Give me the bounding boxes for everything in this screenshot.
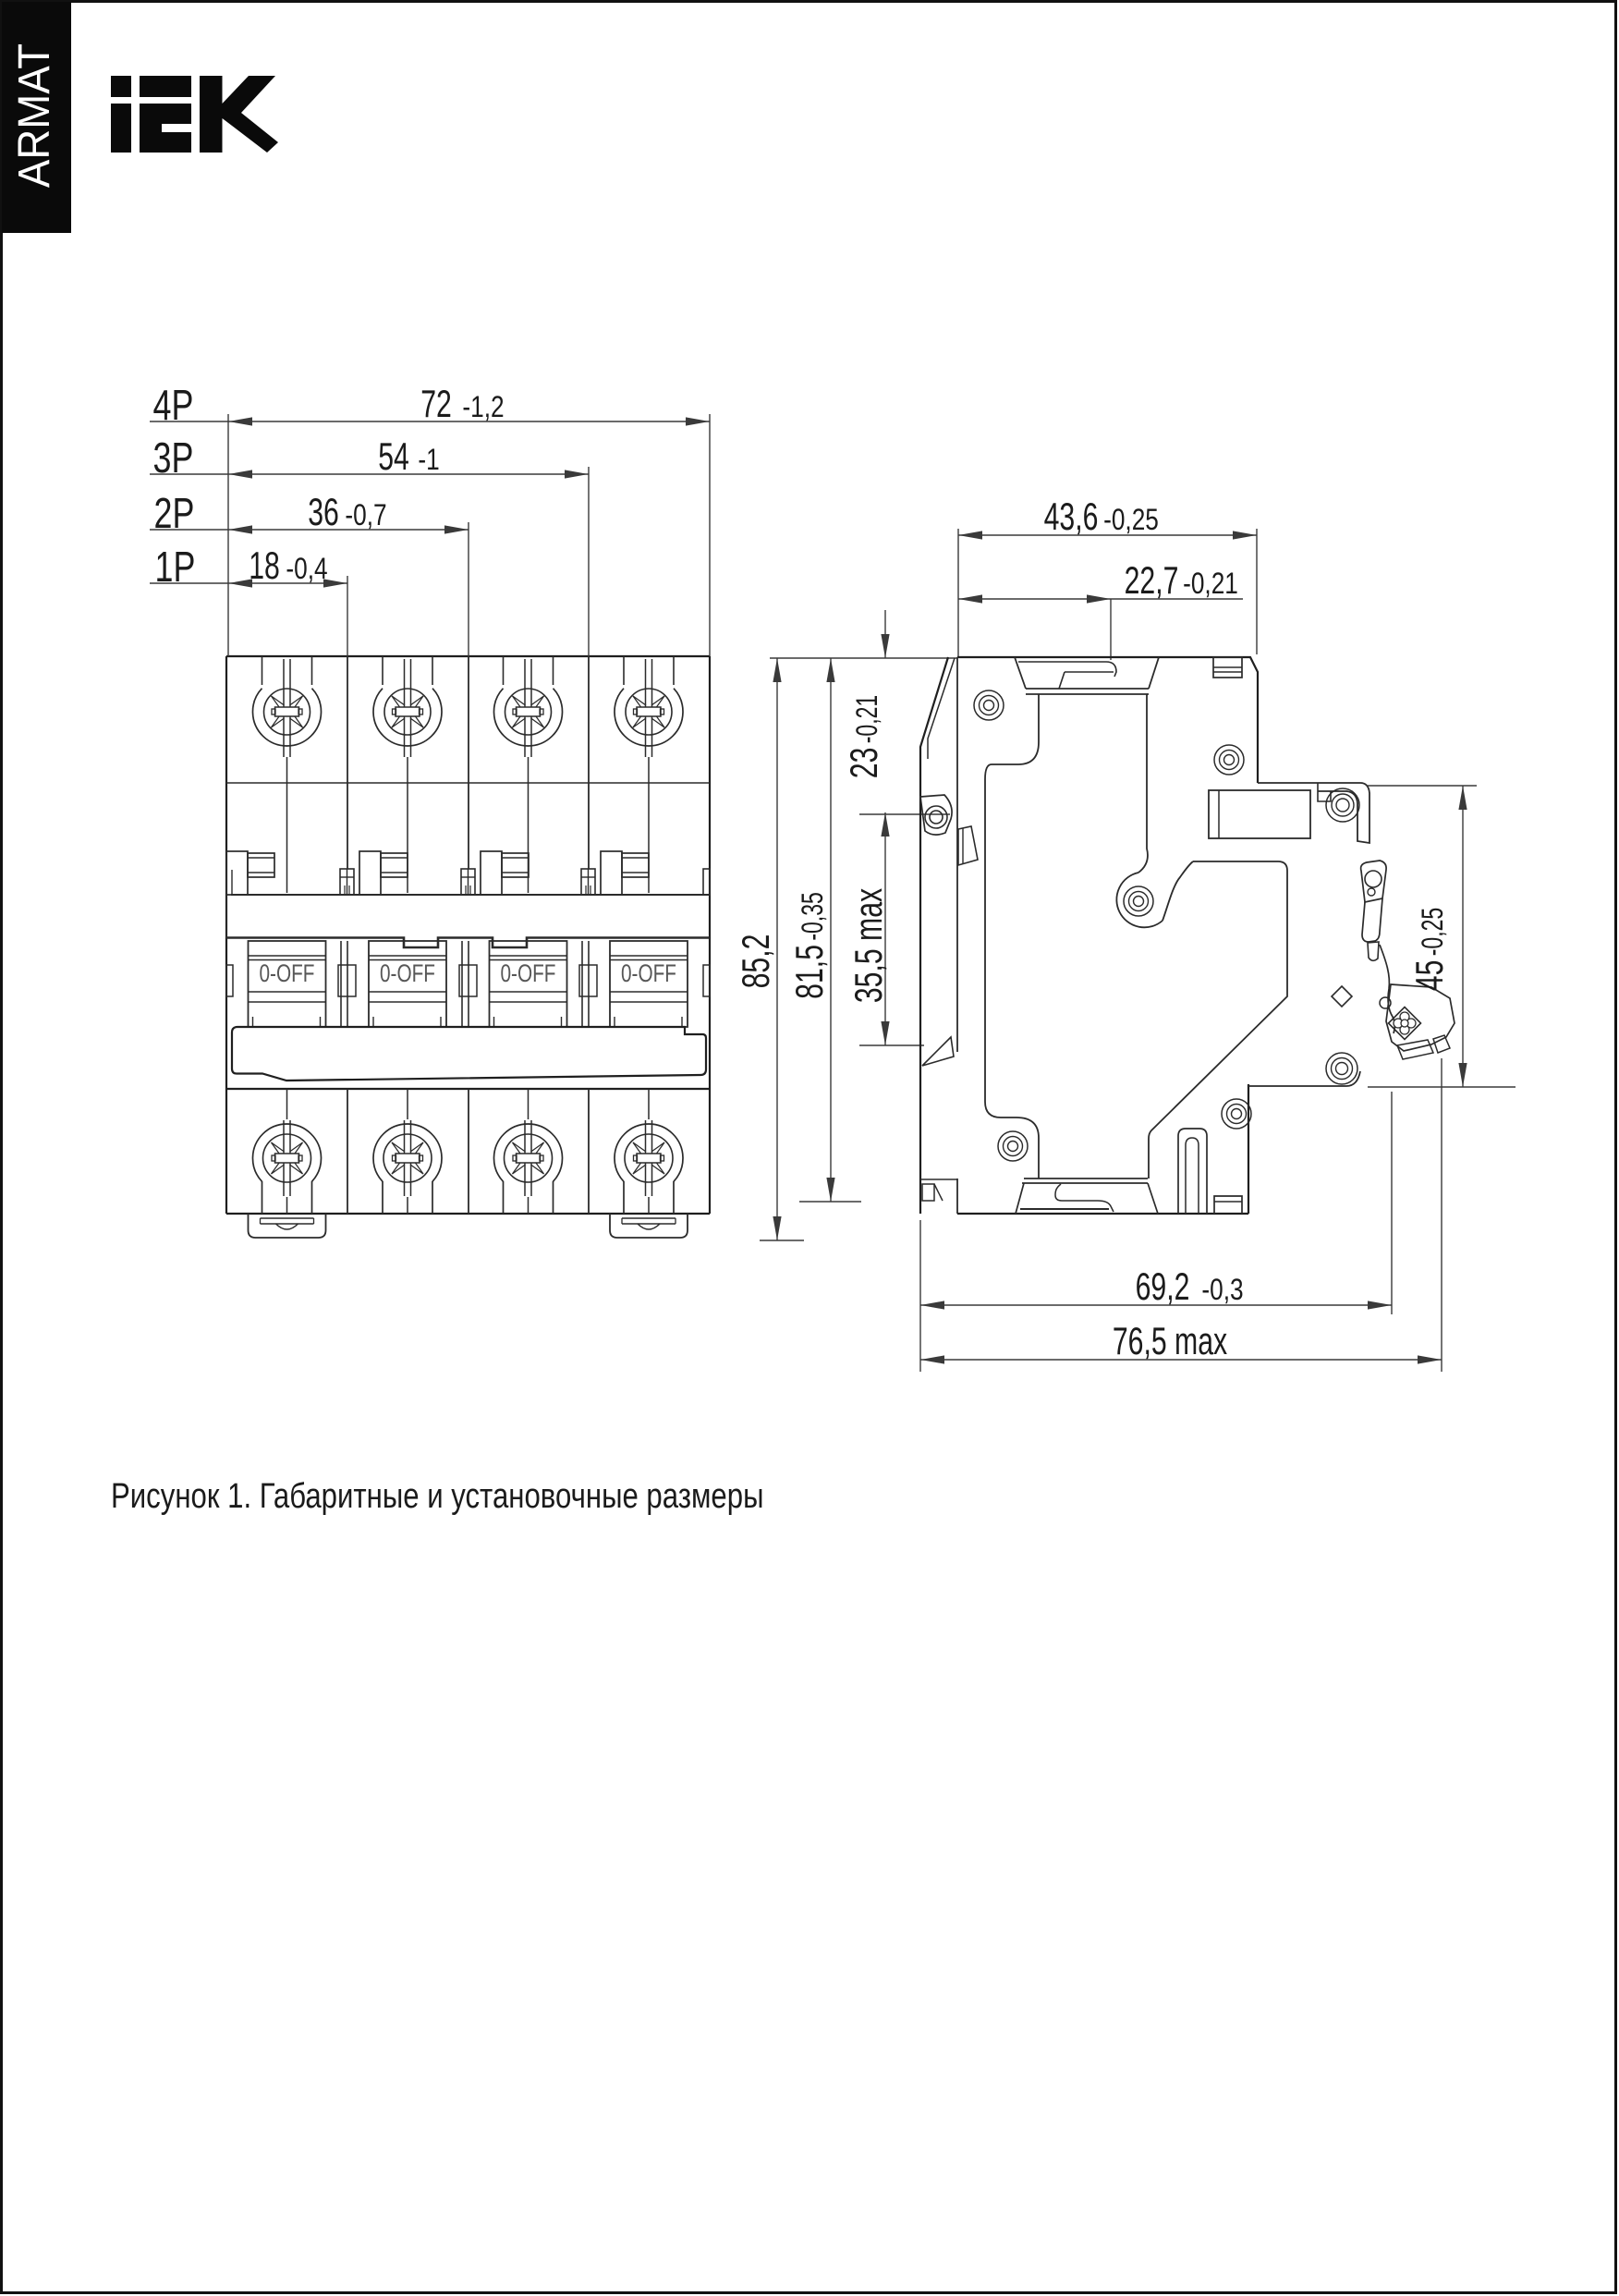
svg-text:69,2: 69,2 — [1136, 1264, 1190, 1308]
svg-text:0-OFF: 0-OFF — [500, 959, 555, 987]
svg-text:-1,2: -1,2 — [462, 392, 504, 424]
svg-text:-0,25: -0,25 — [1103, 505, 1159, 537]
svg-text:0-OFF: 0-OFF — [259, 959, 314, 987]
svg-text:-1: -1 — [418, 445, 439, 477]
svg-text:Рисунок 1. Габаритные и устано: Рисунок 1. Габаритные и установочные раз… — [111, 1477, 763, 1516]
svg-text:23-0,21: 23-0,21 — [842, 695, 885, 778]
svg-text:35,5 max: 35,5 max — [846, 888, 890, 1003]
svg-text:ARMAT: ARMAT — [9, 43, 58, 188]
svg-text:-0,21: -0,21 — [1183, 568, 1238, 601]
svg-text:18: 18 — [249, 543, 280, 587]
svg-text:54: 54 — [378, 434, 409, 478]
svg-text:76,5 max: 76,5 max — [1113, 1319, 1227, 1362]
svg-text:0-OFF: 0-OFF — [621, 959, 676, 987]
svg-text:81,5-0,35: 81,5-0,35 — [787, 892, 831, 999]
svg-text:36: 36 — [308, 490, 339, 533]
svg-text:45-0,25: 45-0,25 — [1407, 908, 1451, 991]
svg-text:4P: 4P — [153, 382, 194, 429]
svg-text:2P: 2P — [154, 490, 195, 537]
svg-text:1P: 1P — [155, 543, 196, 591]
svg-text:22,7: 22,7 — [1125, 558, 1179, 602]
svg-text:-0,3: -0,3 — [1201, 1275, 1243, 1307]
svg-text:72: 72 — [420, 382, 452, 425]
svg-text:85,2: 85,2 — [734, 934, 777, 989]
svg-text:-0,7: -0,7 — [345, 500, 386, 532]
svg-text:3P: 3P — [153, 434, 194, 482]
svg-text:43,6: 43,6 — [1044, 495, 1099, 538]
svg-text:0-OFF: 0-OFF — [380, 959, 435, 987]
svg-text:-0,4: -0,4 — [286, 554, 327, 586]
